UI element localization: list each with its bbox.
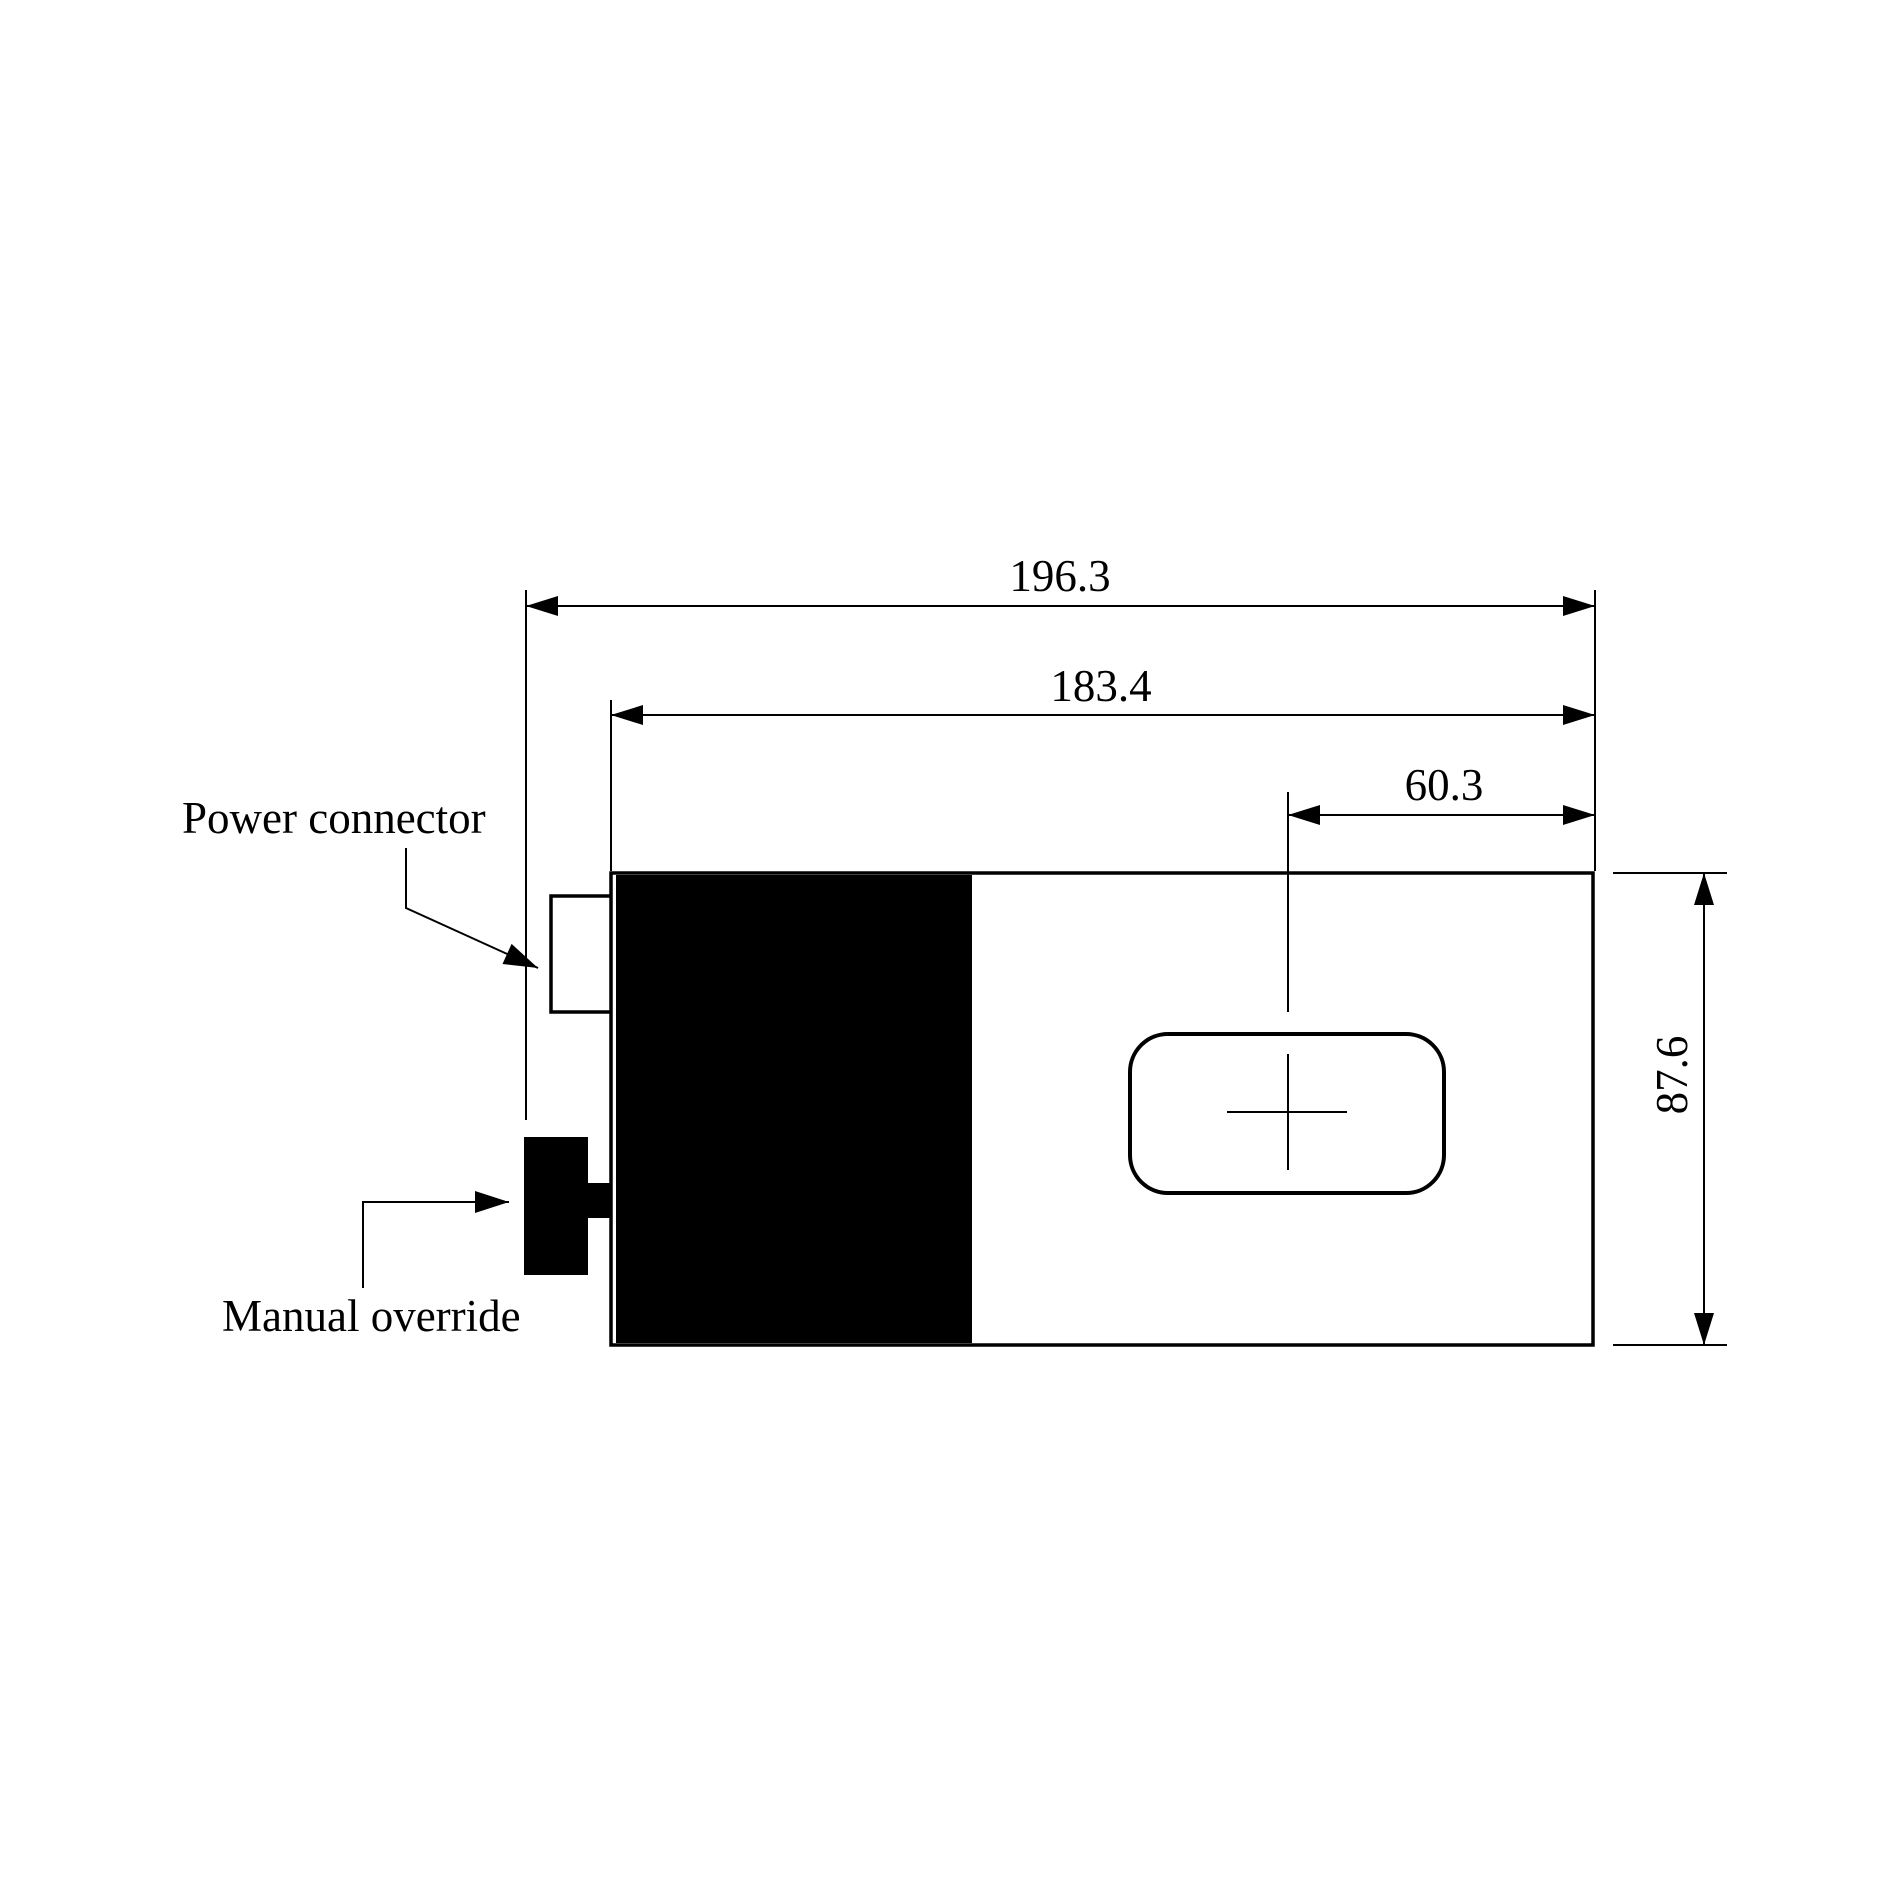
- dim-label-body-width: 183.4: [1050, 661, 1151, 711]
- power-connector-shape: [551, 896, 613, 1012]
- manual-override-label: Manual override: [222, 1291, 521, 1341]
- dim-label-center-to-edge: 60.3: [1405, 760, 1484, 810]
- manual-override-knob: [524, 1137, 588, 1275]
- dim-label-body-height: 87.6: [1647, 1036, 1697, 1115]
- motor-section-fill: [616, 875, 972, 1343]
- manual-override-shaft: [588, 1183, 610, 1218]
- dim-label-overall-width: 196.3: [1009, 551, 1110, 601]
- power-connector-label: Power connector: [182, 793, 486, 843]
- technical-drawing: 196.3 183.4 60.3 87.6: [0, 0, 1900, 1900]
